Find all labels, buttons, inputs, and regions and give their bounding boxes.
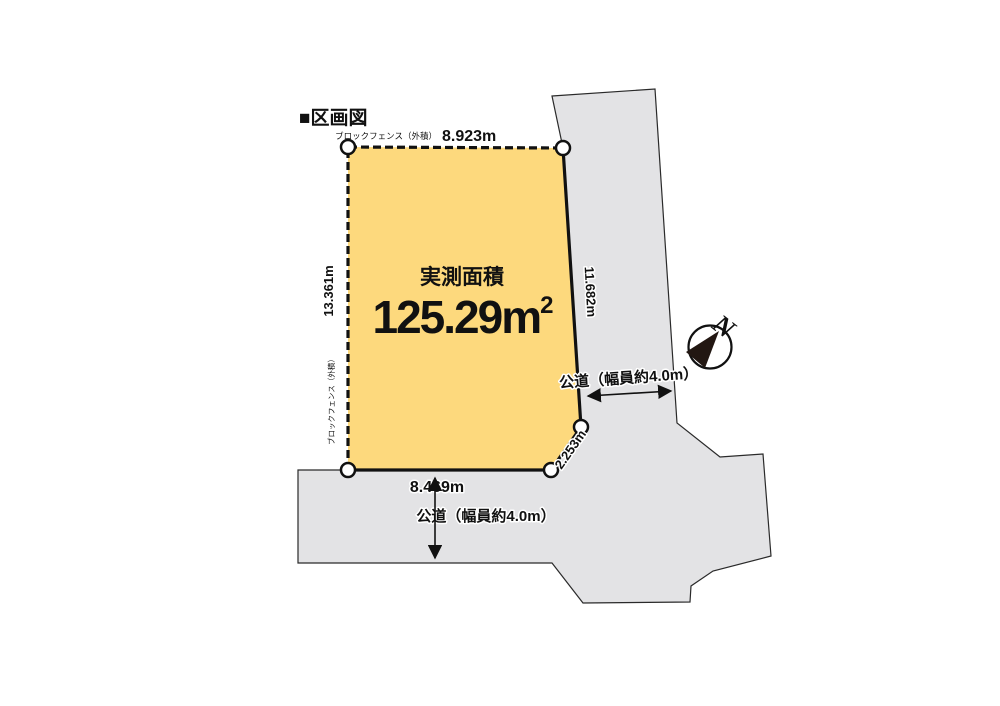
- top-length-label: 8.923m: [442, 128, 496, 145]
- area-unit: m: [501, 291, 540, 343]
- survey-marker: [341, 463, 355, 477]
- fence-label-left: ブロックフェンス（外積）: [326, 355, 336, 445]
- fence-label-top: ブロックフェンス（外積）: [335, 131, 437, 141]
- lot-diagram-canvas: ■区画図 ブロックフェンス（外積） 8.923m 13.361m ブロックフェン…: [0, 0, 1000, 706]
- bottom-length-label: 8.469m: [410, 479, 464, 496]
- figure-title: ■区画図: [299, 107, 367, 129]
- road-label-south: 公道（幅員約4.0m）: [416, 507, 555, 525]
- lot-diagram: ■区画図 ブロックフェンス（外積） 8.923m 13.361m ブロックフェン…: [0, 0, 1000, 706]
- survey-marker: [556, 141, 570, 155]
- area-value: 125.29m2: [373, 291, 554, 343]
- survey-marker: [341, 140, 355, 154]
- area-number: 125.29: [373, 291, 502, 343]
- area-exponent: 2: [540, 292, 553, 319]
- north-compass: N: [686, 308, 742, 369]
- left-length-label: 13.361m: [321, 265, 336, 316]
- area-caption: 実測面積: [420, 265, 505, 289]
- right-length-label: 11.682m: [582, 266, 600, 317]
